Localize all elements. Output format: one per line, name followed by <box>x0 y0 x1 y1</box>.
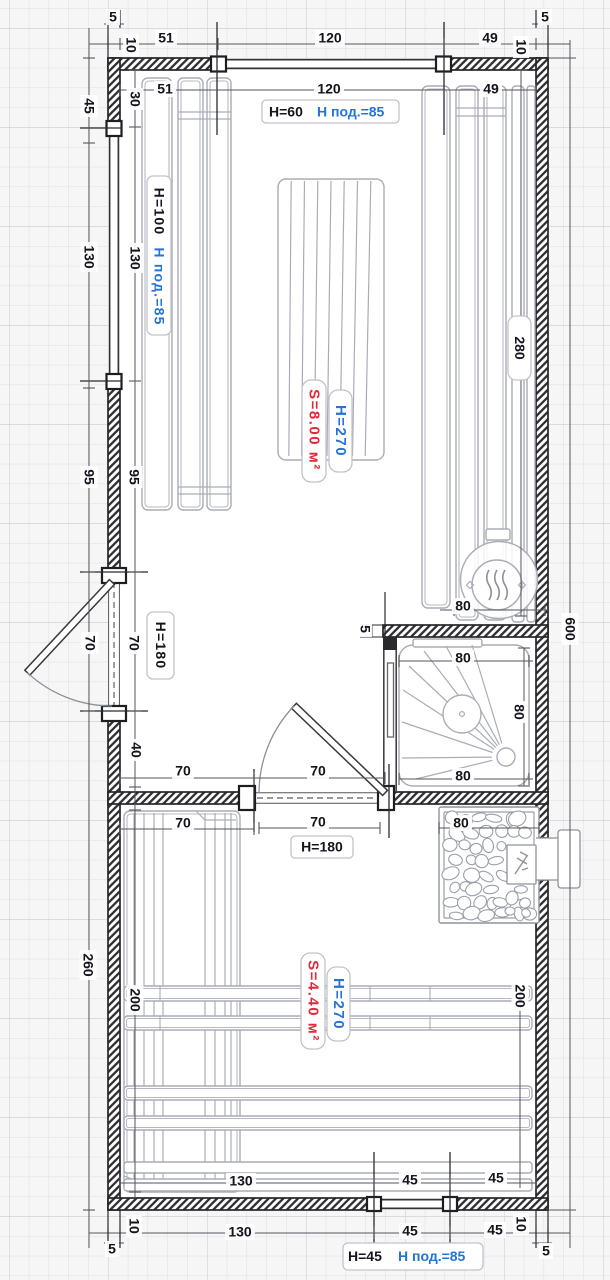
svg-text:70: 70 <box>310 763 326 779</box>
svg-text:30: 30 <box>128 91 144 107</box>
svg-text:5: 5 <box>542 1243 550 1259</box>
svg-text:130: 130 <box>128 246 144 270</box>
svg-text:95: 95 <box>127 469 143 485</box>
svg-text:51: 51 <box>158 30 174 46</box>
svg-text:200: 200 <box>513 984 529 1008</box>
svg-text:70: 70 <box>127 635 143 651</box>
svg-text:45: 45 <box>402 1172 418 1188</box>
svg-text:95: 95 <box>82 469 98 485</box>
svg-text:H=60: H=60 <box>269 104 303 120</box>
svg-text:10: 10 <box>124 37 140 53</box>
svg-text:H=180: H=180 <box>301 839 343 855</box>
svg-text:45: 45 <box>488 1170 504 1186</box>
svg-text:70: 70 <box>310 814 326 830</box>
svg-text:130: 130 <box>82 245 98 269</box>
svg-text:5: 5 <box>109 9 117 25</box>
svg-text:200: 200 <box>128 988 144 1012</box>
svg-text:80: 80 <box>453 815 469 831</box>
svg-text:H=45: H=45 <box>348 1248 382 1264</box>
svg-text:45: 45 <box>82 98 98 114</box>
svg-text:120: 120 <box>317 81 341 97</box>
svg-text:5: 5 <box>358 625 374 633</box>
svg-text:80: 80 <box>455 650 471 666</box>
svg-text:49: 49 <box>482 30 498 46</box>
svg-text:130: 130 <box>229 1173 253 1189</box>
svg-text:S=8.00 м²: S=8.00 м² <box>306 389 323 471</box>
svg-text:45: 45 <box>402 1223 418 1239</box>
svg-text:45: 45 <box>487 1222 503 1238</box>
svg-text:80: 80 <box>455 768 471 784</box>
svg-text:130: 130 <box>228 1224 252 1240</box>
svg-text:70: 70 <box>175 763 191 779</box>
svg-text:H=100: H=100 <box>152 188 168 236</box>
svg-text:Н под.=85: Н под.=85 <box>152 247 168 325</box>
svg-text:10: 10 <box>127 1218 143 1234</box>
svg-text:5: 5 <box>108 1241 116 1257</box>
svg-text:70: 70 <box>83 635 99 651</box>
svg-text:Н под.=85: Н под.=85 <box>317 104 385 120</box>
svg-text:5: 5 <box>541 9 549 25</box>
svg-text:S=4.40 м²: S=4.40 м² <box>305 960 322 1042</box>
svg-text:49: 49 <box>483 81 499 97</box>
svg-text:10: 10 <box>514 1216 530 1232</box>
svg-text:80: 80 <box>512 704 528 720</box>
svg-text:51: 51 <box>157 81 173 97</box>
svg-text:Н под.=85: Н под.=85 <box>398 1248 466 1264</box>
svg-text:260: 260 <box>81 953 97 977</box>
svg-text:H=270: H=270 <box>332 405 349 457</box>
svg-text:H=180: H=180 <box>153 622 169 670</box>
svg-text:10: 10 <box>514 39 530 55</box>
svg-text:40: 40 <box>129 742 145 758</box>
svg-text:600: 600 <box>563 617 579 641</box>
svg-text:70: 70 <box>175 815 191 831</box>
svg-text:H=270: H=270 <box>330 978 347 1030</box>
svg-text:280: 280 <box>512 336 528 360</box>
svg-text:80: 80 <box>455 598 471 614</box>
svg-text:120: 120 <box>318 30 342 46</box>
